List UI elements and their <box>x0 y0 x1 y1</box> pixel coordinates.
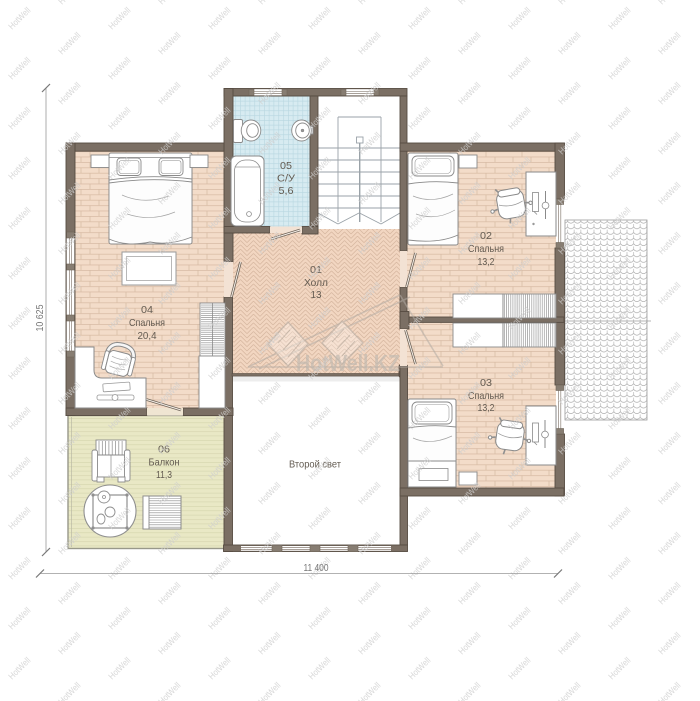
svg-text:11 400: 11 400 <box>304 563 329 574</box>
svg-text:10 625: 10 625 <box>35 304 46 331</box>
